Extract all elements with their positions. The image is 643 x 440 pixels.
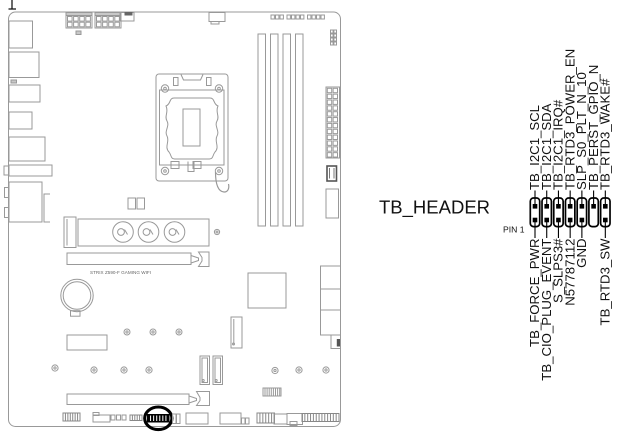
svg-text:TB_RTD3_SW: TB_RTD3_SW	[598, 238, 613, 326]
svg-text:PIN 1: PIN 1	[503, 225, 525, 235]
svg-text:TB_HEADER: TB_HEADER	[379, 197, 490, 219]
svg-text:GND: GND	[574, 239, 589, 268]
svg-text:TB_RTD3_WAKE#: TB_RTD3_WAKE#	[598, 78, 613, 190]
svg-text:STRIX Z590-F GAMING WIFI: STRIX Z590-F GAMING WIFI	[90, 270, 151, 275]
